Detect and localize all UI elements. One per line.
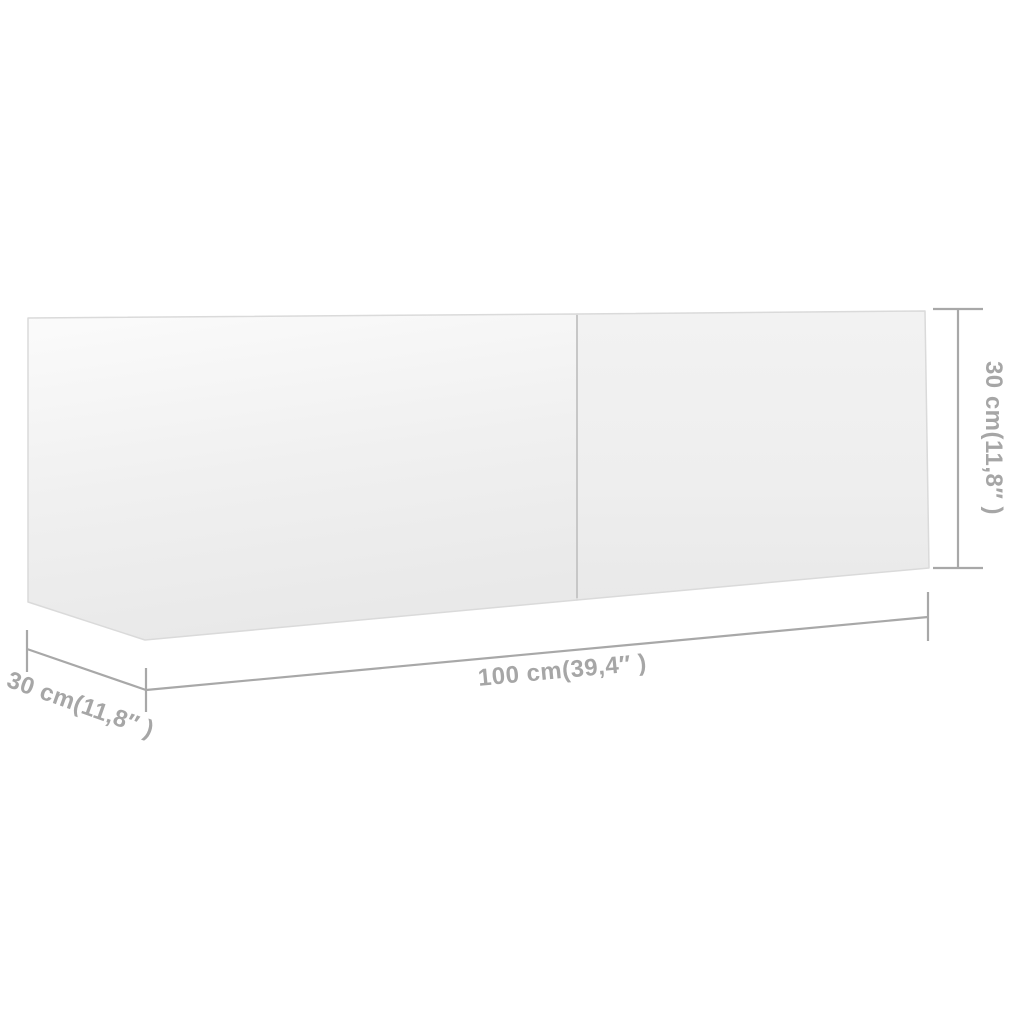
dimension-diagram: 30 cm(11,8″ ) 100 cm(39,4″ ) 30 cm(11,8″… xyxy=(0,0,1024,1024)
cabinet-left-door-panel xyxy=(28,314,577,640)
height-dimension-label: 30 cm(11,8″ ) xyxy=(980,361,1007,515)
product-image-canvas: 30 cm(11,8″ ) 100 cm(39,4″ ) 30 cm(11,8″… xyxy=(0,0,1024,1024)
cabinet-right-door-panel xyxy=(577,311,929,600)
